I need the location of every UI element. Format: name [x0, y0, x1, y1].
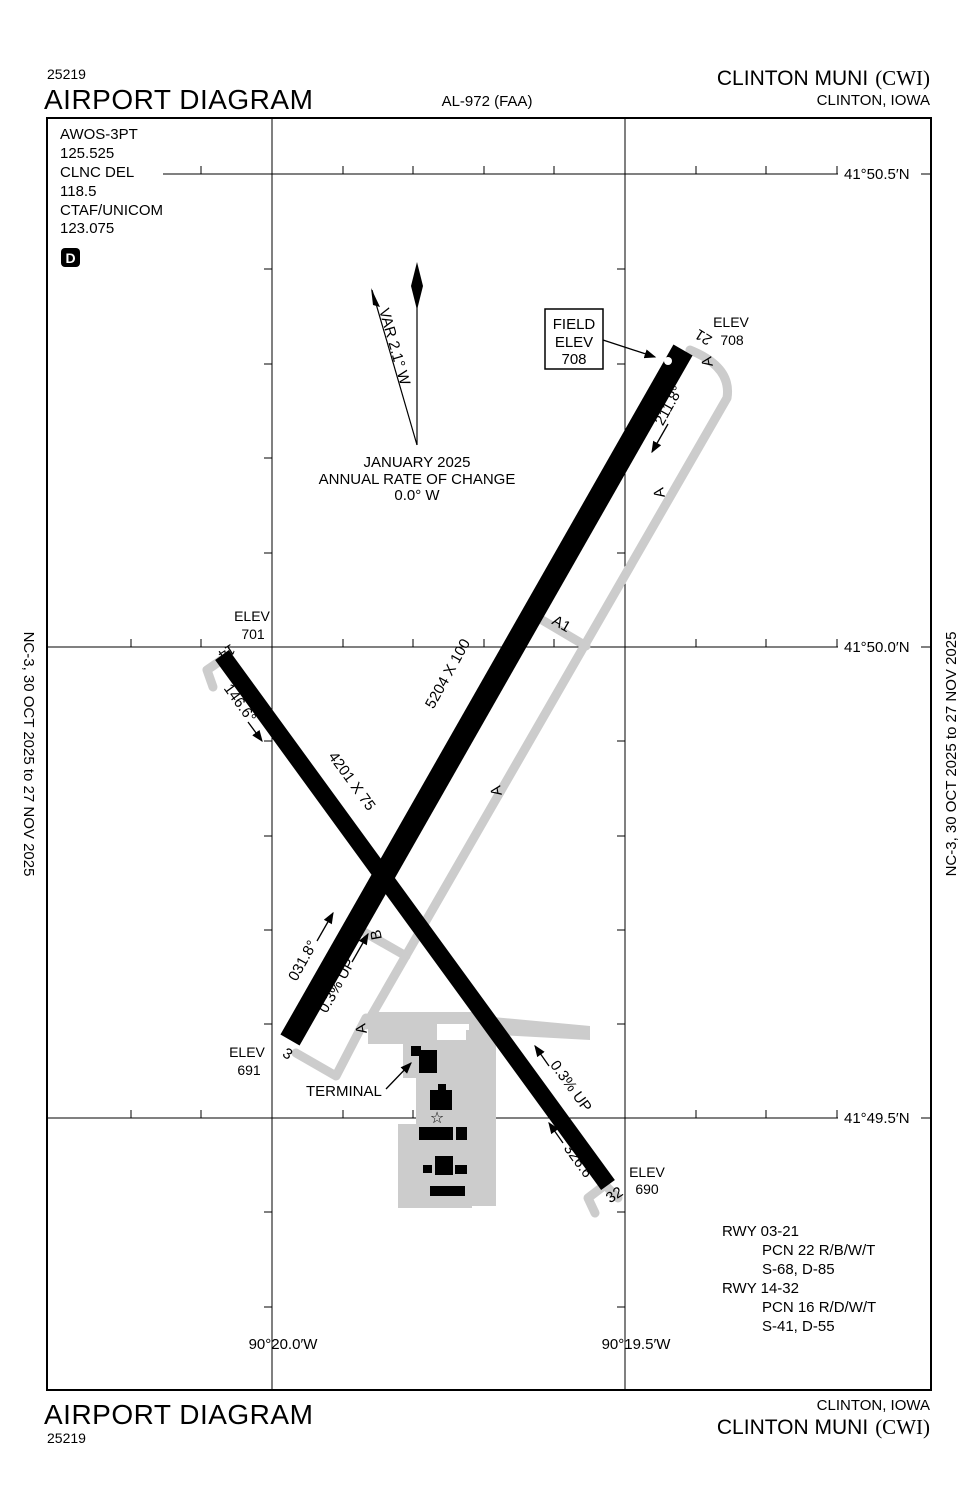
rwy-info-line3: S-68, D-85 [762, 1261, 835, 1278]
hangar-row2 [435, 1156, 453, 1164]
terminal-label: TERMINAL [306, 1083, 382, 1100]
footer-city: CLINTON, IOWA [817, 1397, 930, 1414]
annual-change-line2: ANNUAL RATE OF CHANGE [319, 471, 516, 488]
elev-3-label: ELEV [229, 1044, 265, 1060]
ctaf-unicom-frequency: 123.075 [60, 220, 114, 237]
elev-21-value: 708 [720, 332, 744, 348]
procedure-id: AL-972 (FAA) [442, 93, 533, 110]
airport-diagram-page: 25219 AIRPORT DIAGRAM AL-972 (FAA) CLINT… [0, 0, 978, 1500]
elev-32-value: 690 [635, 1181, 659, 1197]
taxiway-a-label-3: A [487, 784, 505, 797]
field-elev-line1: FIELD [553, 316, 596, 333]
beacon-star-icon: ☆ [430, 1110, 444, 1127]
elev-14-value: 701 [241, 626, 265, 642]
clnc-del-frequency: 118.5 [60, 183, 96, 200]
hangar-row1a [419, 1127, 453, 1140]
elev-14-label: ELEV [234, 608, 270, 624]
page-title: AIRPORT DIAGRAM [44, 84, 313, 115]
ctaf-unicom-label: CTAF/UNICOM [60, 202, 163, 219]
clnc-del-label: CLNC DEL [60, 164, 134, 181]
taxiway-a-label-4: A [352, 1022, 370, 1035]
runway-14-32 [222, 655, 608, 1185]
rwy-info-line2: PCN 22 R/B/W/T [762, 1242, 875, 1259]
hangar-row3c [455, 1165, 467, 1174]
airport-name: CLINTON MUNI [717, 67, 868, 90]
rwy-info-line4: RWY 14-32 [722, 1280, 799, 1297]
heading-21-arrow [652, 424, 668, 452]
hangar-row3b [435, 1163, 453, 1175]
hangar-row4 [430, 1186, 465, 1196]
longitude-label-2: 90°19.5′W [602, 1336, 672, 1353]
latitude-label-2: 41°50.0′N [844, 639, 910, 656]
variation-label: VAR 2.1° W [375, 306, 413, 388]
cycle-note-left: NC-3, 30 OCT 2025 to 27 NOV 2025 [20, 632, 37, 877]
footer-title: AIRPORT DIAGRAM [44, 1399, 313, 1430]
footer-airport-icao: (CWI) [875, 1415, 930, 1439]
runway-03-21 [290, 350, 683, 1040]
field-elev-arrow [603, 340, 655, 357]
latitude-label-3: 41°49.5′N [844, 1110, 910, 1127]
cycle-note-right: NC-3, 30 OCT 2025 to 27 NOV 2025 [943, 632, 960, 877]
hangar-row1b [456, 1127, 467, 1140]
heading-14-arrow [248, 722, 262, 741]
runway-number-21: 21 [692, 325, 715, 348]
building-2 [430, 1090, 452, 1110]
terminal-building [419, 1050, 437, 1073]
taxiway-a-label-2: A [650, 486, 668, 499]
airport-title: CLINTON MUNI(CWI) [717, 66, 930, 90]
footer-airport-title: CLINTON MUNI(CWI) [717, 1415, 930, 1439]
longitude-label-1: 90°20.0′W [249, 1336, 319, 1353]
hangar-row3a [423, 1165, 432, 1173]
field-elev-value: 708 [561, 351, 586, 368]
true-north-arrow-icon [411, 262, 423, 310]
elev-3-value: 691 [237, 1062, 261, 1078]
chart-code-bottom: 25219 [47, 1430, 86, 1446]
field-elevation-dot [664, 357, 672, 365]
airport-icao: (CWI) [875, 66, 930, 90]
rwy-info-line6: S-41, D-55 [762, 1318, 835, 1335]
elev-21-label: ELEV [713, 314, 749, 330]
diagram-canvas: 25219 AIRPORT DIAGRAM AL-972 (FAA) CLINT… [0, 0, 978, 1500]
rwy-info-line1: RWY 03-21 [722, 1223, 799, 1240]
annual-change-line3: 0.0° W [394, 487, 440, 504]
chart-code-top: 25219 [47, 66, 86, 82]
field-elev-line2: ELEV [555, 334, 593, 351]
runway-14-32-gradient-arrow [535, 1046, 549, 1066]
airport-city: CLINTON, IOWA [817, 92, 930, 109]
heading-03-arrow [317, 913, 333, 941]
awos-label: AWOS-3PT [60, 126, 138, 143]
latitude-label-1: 41°50.5′N [844, 166, 910, 183]
awos-frequency: 125.525 [60, 145, 114, 162]
latitude-ticks [131, 166, 837, 1118]
diagram-d-letter: D [65, 250, 75, 266]
footer-airport-name: CLINTON MUNI [717, 1416, 868, 1439]
annual-change-line1: JANUARY 2025 [363, 454, 470, 471]
taxiway-b-label: B [367, 928, 385, 941]
rwy-info-line5: PCN 16 R/D/W/T [762, 1299, 876, 1316]
elev-32-label: ELEV [629, 1164, 665, 1180]
